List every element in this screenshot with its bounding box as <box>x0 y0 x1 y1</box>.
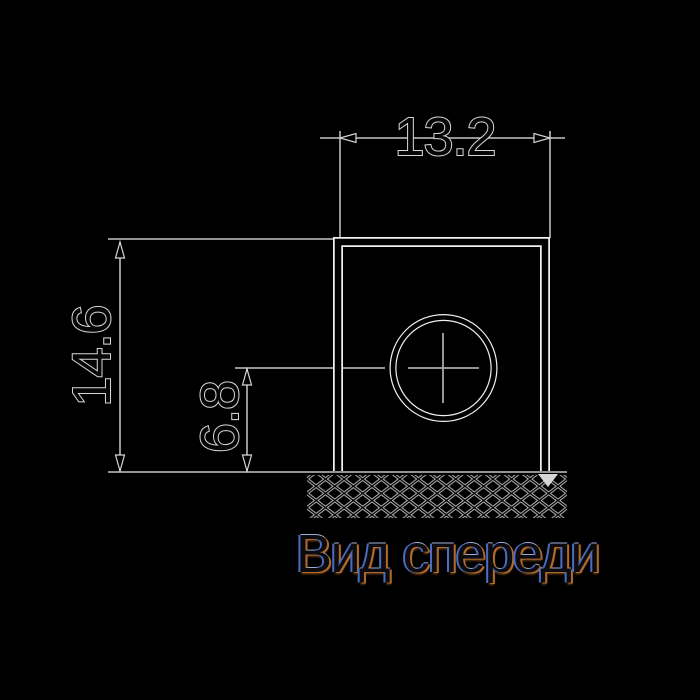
width-arrow-right <box>534 134 550 143</box>
dim-width-label: 13.2 <box>394 107 495 167</box>
dim-height-label: 14.6 <box>62 305 122 406</box>
dim-hole-height-label: 6.8 <box>190 381 250 453</box>
width-arrow-left <box>340 134 356 143</box>
body-outline <box>338 242 545 471</box>
height-arrow-bottom <box>116 455 125 471</box>
hatch-band <box>307 475 567 518</box>
hole-arrow-bottom <box>243 455 252 471</box>
front-view-drawing: 13.2 14.6 6.8 <box>0 0 700 700</box>
drawing-canvas: 13.2 14.6 6.8 Вид спереди <box>0 0 700 700</box>
generated-geometry <box>108 131 567 518</box>
body-outline-halo <box>338 242 545 471</box>
view-title: Вид спереди <box>296 523 599 585</box>
height-arrow-top <box>116 242 125 258</box>
